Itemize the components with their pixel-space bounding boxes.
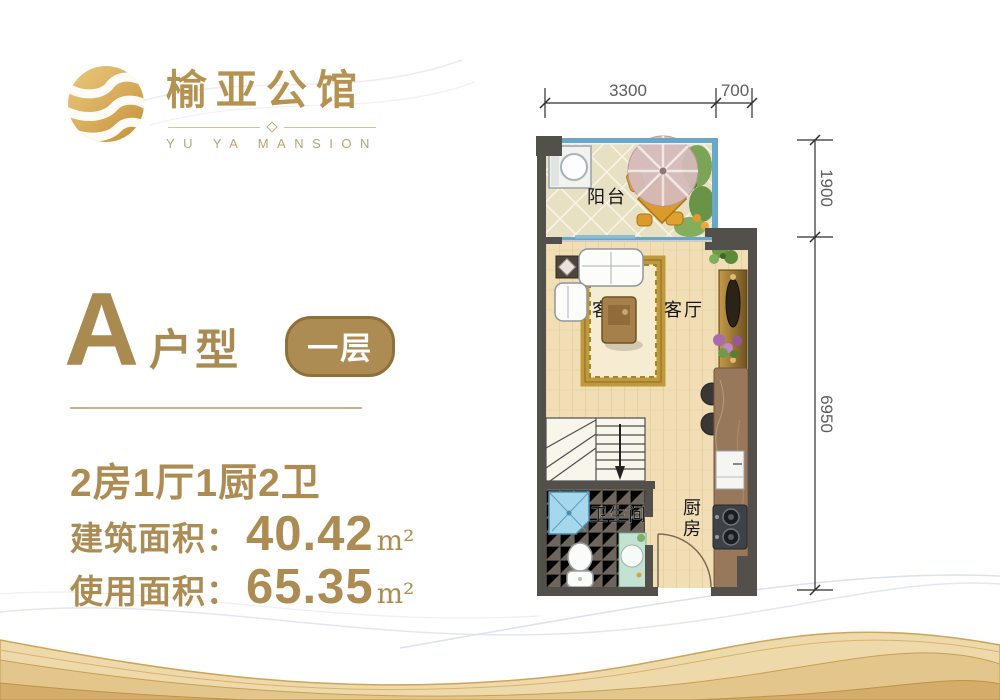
diamond-icon (266, 121, 277, 132)
brand-logo: 榆亚公馆 YU YA MANSION (66, 56, 378, 151)
building-area-unit: m² (377, 524, 415, 557)
toilet (567, 543, 593, 587)
bathroom-zone (546, 489, 646, 587)
unit-heading: A 户型 一层 (64, 278, 395, 383)
building-area-value: 40.42 (246, 506, 374, 562)
washbasin (619, 533, 646, 587)
unit-type-label: 户型 (149, 316, 241, 378)
usable-area-label: 使用面积： (70, 565, 240, 613)
usable-area-value: 65.35 (246, 559, 374, 615)
logo-ornament (168, 123, 376, 131)
brand-name-en: YU YA MANSION (166, 136, 378, 151)
poster-page: { "brand": { "name_cn": "榆亚公馆", "name_en… (0, 0, 1000, 700)
living-room-label: 客厅 (664, 300, 704, 320)
building-area-row: 建筑面积： 40.42 m² (70, 506, 414, 562)
floorplan: 客 (530, 70, 840, 610)
dim-right-height-2: 6950 (817, 395, 836, 433)
unit-type-letter: A (64, 278, 139, 382)
umbrella-icon (628, 136, 698, 206)
building-area-label: 建筑面积： (70, 512, 240, 560)
floor-badge: 一层 (285, 316, 395, 377)
usable-area-unit: m² (377, 577, 415, 610)
balcony-zone (541, 136, 718, 238)
dim-top-width-1: 3300 (609, 81, 647, 100)
rooms-summary: 2房1厅1厨2卫 (70, 452, 321, 508)
dim-top-width-2: 700 (721, 81, 749, 100)
balcony-label: 阳台 (587, 187, 627, 207)
stairs (546, 418, 645, 481)
kitchen-sink (716, 451, 744, 489)
usable-area-row: 使用面积： 65.35 m² (70, 559, 414, 615)
shower (549, 492, 589, 534)
bathroom-label: 卫生间 (590, 505, 647, 525)
divider-line (70, 407, 362, 409)
dim-right-height-1: 1900 (817, 169, 836, 207)
kitchen-label: 厨房 (681, 498, 701, 540)
brand-name-cn: 榆亚公馆 (166, 56, 378, 116)
stove (713, 505, 747, 549)
brand-logo-icon (66, 64, 146, 144)
